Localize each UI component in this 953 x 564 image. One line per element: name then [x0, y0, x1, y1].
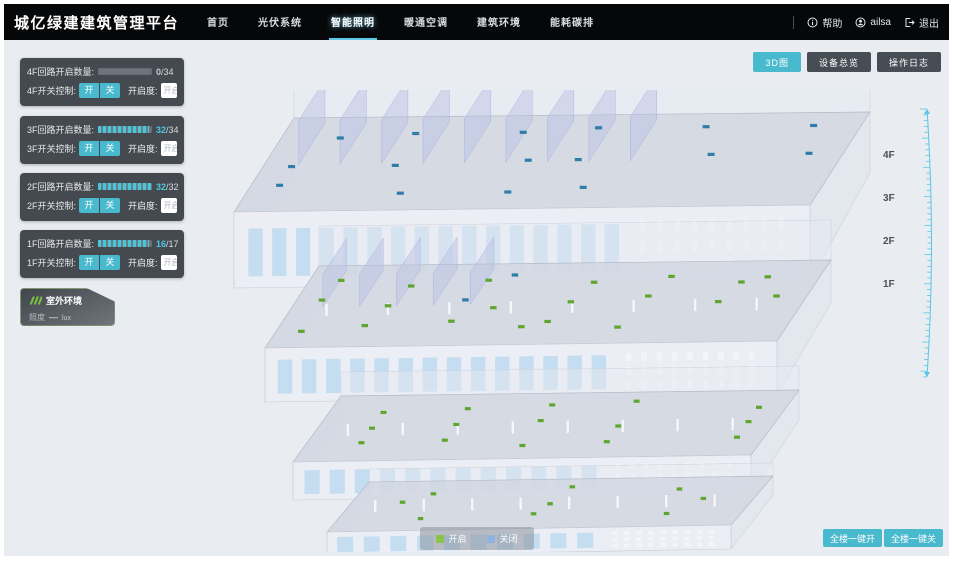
switch-control-label: 4F开关控制: — [27, 84, 76, 97]
floor-axis-label-3f[interactable]: 3F — [883, 193, 895, 204]
dim-level-label: 开启度: — [128, 199, 158, 212]
floor-panel-3f: 3F回路开启数量: 32/34 3F开关控制: 开 关 开启度: % — [20, 116, 184, 164]
dim-level-label: 开启度: — [128, 84, 158, 97]
circuit-count-label: 3F回路开启数量: — [27, 123, 94, 136]
view-button-group: 3D图 设备总览 操作日志 — [753, 52, 941, 72]
switch-off-button[interactable]: 关 — [100, 83, 120, 98]
view-3d-button[interactable]: 3D图 — [753, 52, 801, 72]
switch-on-button[interactable]: 开 — [79, 83, 99, 98]
dim-level-label: 开启度: — [128, 142, 158, 155]
dim-level-input[interactable] — [161, 198, 177, 213]
switch-control-label: 1F开关控制: — [27, 256, 76, 269]
legend-off-swatch — [487, 535, 495, 543]
dim-input-group: % — [161, 255, 177, 270]
switch-on-button[interactable]: 开 — [79, 255, 99, 270]
logout-icon — [904, 17, 915, 28]
main-stage: 4F回路开启数量: 0/34 4F开关控制: 开 关 开启度: % 3F回路开启… — [4, 40, 949, 556]
switch-button-group: 开 关 — [79, 83, 120, 98]
platform-title: 城亿绿建建筑管理平台 — [14, 12, 179, 33]
operation-log-button[interactable]: 操作日志 — [877, 52, 941, 72]
legend-on-swatch — [435, 535, 443, 543]
help-label: 帮助 — [822, 15, 842, 30]
circuit-count-value: 0/34 — [156, 67, 174, 77]
all-off-button[interactable]: 全楼一键关 — [884, 529, 943, 547]
switch-on-button[interactable]: 开 — [79, 198, 99, 213]
switch-off-button[interactable]: 关 — [100, 198, 120, 213]
circuit-count-label: 2F回路开启数量: — [27, 180, 94, 193]
device-overview-button[interactable]: 设备总览 — [807, 52, 871, 72]
building-floor-1f — [327, 463, 773, 552]
dim-level-input[interactable] — [161, 141, 177, 156]
username: ailsa — [870, 17, 891, 28]
nav-home[interactable]: 首页 — [205, 4, 231, 40]
legend-on-label: 开启 — [448, 532, 466, 545]
circuit-progress-bar — [98, 126, 152, 133]
switch-off-button[interactable]: 关 — [100, 255, 120, 270]
outdoor-env-title: 室外环境 — [46, 294, 82, 307]
circuit-progress-bar — [98, 240, 152, 247]
header-user-area: 帮助 ailsa 退出 — [793, 15, 939, 30]
floor-panel-4f: 4F回路开启数量: 0/34 4F开关控制: 开 关 开启度: % — [20, 58, 184, 106]
circuit-count-value: 16/17 — [156, 239, 179, 249]
help-link[interactable]: 帮助 — [807, 15, 842, 30]
circuit-count-label: 4F回路开启数量: — [27, 65, 94, 78]
logout-link[interactable]: 退出 — [904, 15, 939, 30]
all-on-button[interactable]: 全楼一键开 — [823, 529, 882, 547]
status-legend: 开启 关闭 — [419, 527, 533, 550]
switch-on-button[interactable]: 开 — [79, 141, 99, 156]
legend-on: 开启 — [435, 532, 466, 545]
switch-control-label: 2F开关控制: — [27, 199, 76, 212]
floor-ruler — [907, 103, 947, 383]
top-header: 城亿绿建建筑管理平台 首页 光伏系统 智能照明 暖通空调 建筑环境 能耗碳排 帮… — [4, 4, 949, 40]
illuminance-label: 照度 — [29, 312, 45, 323]
progress-fill — [98, 183, 152, 190]
floor-axis-label-4f[interactable]: 4F — [883, 150, 895, 161]
legend-off-label: 关闭 — [500, 532, 518, 545]
bulk-button-group: 全楼一键开 全楼一键关 — [823, 529, 943, 547]
switch-button-group: 开 关 — [79, 198, 120, 213]
switch-button-group: 开 关 — [79, 255, 120, 270]
user-icon — [855, 17, 866, 28]
outdoor-env-icon — [29, 296, 42, 305]
circuit-count-label: 1F回路开启数量: — [27, 237, 94, 250]
floor-axis-label-1f[interactable]: 1F — [883, 279, 895, 290]
floor-panel-1f: 1F回路开启数量: 16/17 1F开关控制: 开 关 开启度: % — [20, 230, 184, 278]
illuminance-unit: lux — [62, 315, 71, 322]
nav-hvac[interactable]: 暖通空调 — [402, 4, 450, 40]
nav-energy-carbon[interactable]: 能耗碳排 — [548, 4, 596, 40]
floor-axis-label-2f[interactable]: 2F — [883, 236, 895, 247]
nav-smart-lighting[interactable]: 智能照明 — [329, 4, 377, 40]
circuit-count-value: 32/32 — [156, 182, 179, 192]
progress-fill — [98, 240, 149, 247]
switch-button-group: 开 关 — [79, 141, 120, 156]
building-3d-view[interactable] — [220, 90, 885, 552]
switch-off-button[interactable]: 关 — [100, 141, 120, 156]
progress-fill — [98, 126, 149, 133]
dim-input-group: % — [161, 141, 177, 156]
dim-level-input[interactable] — [161, 83, 177, 98]
legend-off: 关闭 — [487, 532, 518, 545]
logout-label: 退出 — [919, 15, 939, 30]
outdoor-env-panel: 室外环境 照度 — lux — [20, 288, 115, 326]
circuit-count-value: 32/34 — [156, 125, 179, 135]
circuit-progress-bar — [98, 68, 152, 75]
switch-control-label: 3F开关控制: — [27, 142, 76, 155]
floor-panel-2f: 2F回路开启数量: 32/32 2F开关控制: 开 关 开启度: % — [20, 173, 184, 221]
info-icon — [807, 17, 818, 28]
dim-level-label: 开启度: — [128, 256, 158, 269]
illuminance-value: — — [49, 312, 58, 322]
main-nav: 首页 光伏系统 智能照明 暖通空调 建筑环境 能耗碳排 — [205, 4, 596, 40]
header-divider — [793, 16, 794, 29]
nav-building-env[interactable]: 建筑环境 — [475, 4, 523, 40]
user-menu[interactable]: ailsa — [855, 17, 891, 28]
circuit-progress-bar — [98, 183, 152, 190]
app-window: 城亿绿建建筑管理平台 首页 光伏系统 智能照明 暖通空调 建筑环境 能耗碳排 帮… — [4, 4, 949, 556]
dim-input-group: % — [161, 83, 177, 98]
dim-input-group: % — [161, 198, 177, 213]
dim-level-input[interactable] — [161, 255, 177, 270]
nav-pv-system[interactable]: 光伏系统 — [256, 4, 304, 40]
